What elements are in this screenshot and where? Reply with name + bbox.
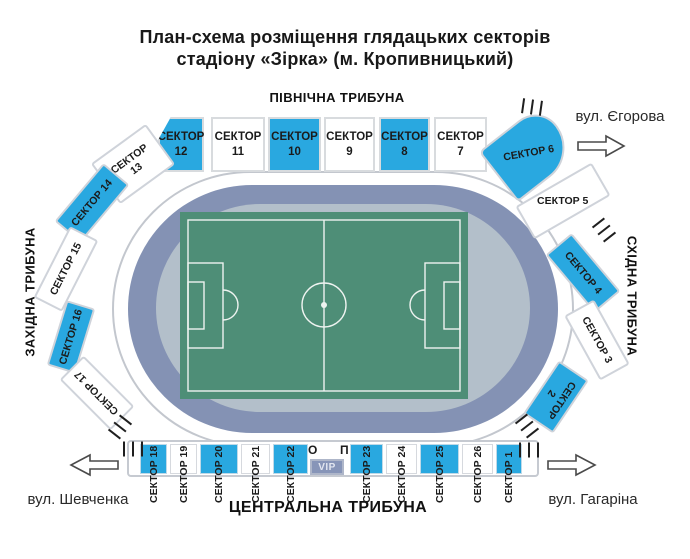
- street-shevchenka-label: вул. Шевченка: [12, 491, 144, 508]
- street-haharina-label: вул. Гагаріна: [531, 491, 655, 508]
- sector-label: СЕКТОР: [326, 130, 373, 144]
- gate-marks-icon: [521, 98, 543, 116]
- sector-number: 10: [288, 145, 301, 159]
- sector-label: СЕКТОР 25: [434, 446, 446, 503]
- north-stand-label: ПІВНІЧНА ТРИБУНА: [187, 90, 487, 105]
- sector-label: СЕКТОР 15: [48, 241, 85, 297]
- sector-label: СЕКТОР 22: [285, 446, 297, 503]
- vip-box[interactable]: VIP: [310, 459, 344, 475]
- sector-label: СЕКТОР: [158, 130, 205, 144]
- stadium-plan: План-схема розміщення глядацьких секторі…: [0, 0, 690, 559]
- sector-label: СЕКТОР: [381, 130, 428, 144]
- sector-number: 11: [232, 145, 244, 159]
- sector-number: 12: [175, 145, 188, 159]
- sector-label: СЕКТОР 14: [69, 177, 115, 229]
- sector-18[interactable]: СЕКТОР 18: [140, 441, 167, 505]
- street-yehorova-label: вул. Єгорова: [558, 108, 682, 125]
- sector-label: СЕКТОР 19: [178, 446, 190, 503]
- page-title-line2: стадіону «Зірка» (м. Кропивницький): [0, 49, 690, 70]
- sector-11[interactable]: СЕКТОР 11: [211, 117, 265, 172]
- arrow-right-haharina-icon: [546, 452, 598, 478]
- east-stand-label: СХІДНА ТРИБУНА: [625, 236, 640, 356]
- sector-label: СЕКТОР 20: [213, 446, 225, 503]
- sector-20[interactable]: СЕКТОР 20: [200, 441, 238, 505]
- sector-19[interactable]: СЕКТОР 19: [170, 441, 197, 505]
- vip-p-mark: П: [340, 443, 349, 457]
- sector-label: СЕКТОР 26: [472, 446, 484, 503]
- arrow-right-yehorova-icon: [576, 133, 626, 159]
- sector-label: СЕКТОР 18: [148, 446, 160, 503]
- sector-15[interactable]: СЕКТОР 15: [34, 226, 99, 312]
- gate-marks-icon: [592, 218, 616, 243]
- sector-label: СЕКТОР 3: [579, 315, 614, 366]
- sector-7[interactable]: СЕКТОР 7: [434, 117, 487, 172]
- sector-label: СЕКТОР 6: [503, 143, 556, 164]
- sector-label: СЕКТОР 21: [250, 446, 262, 503]
- sector-21[interactable]: СЕКТОР 21: [241, 441, 270, 505]
- sector-9[interactable]: СЕКТОР 9: [324, 117, 375, 172]
- sector-8[interactable]: СЕКТОР 8: [379, 117, 430, 172]
- sector-number: 7: [457, 145, 463, 159]
- sector-label: СЕКТОР 5: [537, 195, 588, 207]
- sector-label: СЕКТОР: [271, 130, 318, 144]
- sector-10[interactable]: СЕКТОР 10: [268, 117, 321, 172]
- football-pitch: [180, 212, 468, 399]
- sector-number: 8: [401, 145, 407, 159]
- sector-label: СЕКТОР 23: [361, 446, 373, 503]
- sector-25[interactable]: СЕКТОР 25: [420, 441, 459, 505]
- pitch-markings: [180, 212, 468, 399]
- sector-3[interactable]: СЕКТОР 3: [564, 299, 630, 380]
- vip-o-mark: О: [308, 443, 317, 457]
- sector-label: СЕКТОР: [437, 130, 484, 144]
- sector-26[interactable]: СЕКТОР 26: [462, 441, 493, 505]
- gate-marks-icon: [519, 443, 539, 458]
- sector-14[interactable]: СЕКТОР 14: [55, 163, 130, 243]
- gate-marks-icon: [123, 442, 143, 457]
- sector-label: СЕКТОР: [215, 130, 262, 144]
- page-title-line1: План-схема розміщення глядацьких секторі…: [0, 27, 690, 48]
- sector-label: СЕКТОР 17: [73, 369, 122, 418]
- sector-24[interactable]: СЕКТОР 24: [386, 441, 417, 505]
- sector-22[interactable]: СЕКТОР 22: [273, 441, 308, 505]
- sector-number: 9: [346, 145, 352, 159]
- sector-label: СЕКТОР 24: [396, 446, 408, 503]
- sector-label: СЕКТОР 1: [503, 452, 515, 503]
- sector-23[interactable]: СЕКТОР 23: [350, 441, 383, 505]
- arrow-left-shevchenka-icon: [68, 452, 120, 478]
